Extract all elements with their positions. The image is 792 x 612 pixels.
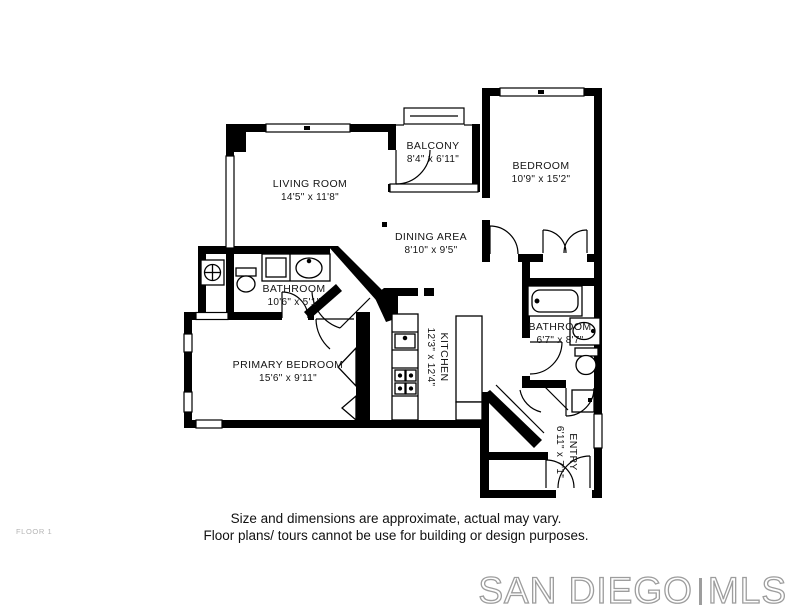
bathroom1-toilet-icon [236,268,256,292]
room-dimensions: 10'9" x 15'2" [512,173,571,187]
room-dimensions: 6'7" x 8'7" [528,334,591,348]
kitchen-counter [392,314,418,420]
bathtub-icon [528,286,582,316]
room-dimensions: 8'4" x 6'11" [407,153,460,167]
room-label-bedroom: BEDROOM 10'9" x 15'2" [512,159,571,187]
room-name: KITCHEN [437,328,451,387]
room-name: ENTRY [566,426,580,478]
room-label-entry: ENTRY 6'11" x 7'1" [552,426,580,478]
room-name: BATHROOM [528,320,591,334]
washer-icon [201,260,224,285]
room-label-kitchen: KITCHEN 12'3" x 12'4" [423,328,451,387]
disclaimer-line-2: Floor plans/ tours cannot be use for bui… [0,527,792,544]
kitchen-island [456,316,482,420]
disclaimer-line-1: Size and dimensions are approximate, act… [0,510,792,527]
room-dimensions: 14'5" x 11'8" [273,191,347,205]
room-dimensions: 12'3" x 12'4" [423,328,437,387]
room-name: PRIMARY BEDROOM [233,358,344,372]
room-label-primary-bedroom: PRIMARY BEDROOM 15'6" x 9'11" [233,358,344,386]
room-name: BALCONY [407,139,460,153]
watermark-text-left: SAN DIEGO [478,574,693,608]
room-name: LIVING ROOM [273,177,347,191]
room-name: BEDROOM [512,159,571,173]
bathroom1-vanity [262,254,330,281]
room-dimensions: 8'10" x 9'5" [395,244,467,258]
room-label-bathroom-2: BATHROOM 6'7" x 8'7" [528,320,591,348]
room-dimensions: 6'11" x 7'1" [552,426,566,478]
watermark-divider [699,578,702,605]
room-label-dining-area: DINING AREA 8'10" x 9'5" [395,230,467,258]
disclaimer: Size and dimensions are approximate, act… [0,510,792,544]
floor-plan-page: LIVING ROOM 14'5" x 11'8" BALCONY 8'4" x… [0,0,792,612]
room-label-bathroom-1: BATHROOM 10'6" x 5'1" [262,282,325,310]
room-dimensions: 10'6" x 5'1" [262,296,325,310]
room-label-balcony: BALCONY 8'4" x 6'11" [407,139,460,167]
room-dimensions: 15'6" x 9'11" [233,372,344,386]
bathroom2-toilet-icon [575,348,598,375]
room-name: DINING AREA [395,230,467,244]
room-label-living-room: LIVING ROOM 14'5" x 11'8" [273,177,347,205]
watermark-text-right: MLS [708,574,787,608]
mls-watermark: SAN DIEGO MLS [478,574,787,608]
room-name: BATHROOM [262,282,325,296]
